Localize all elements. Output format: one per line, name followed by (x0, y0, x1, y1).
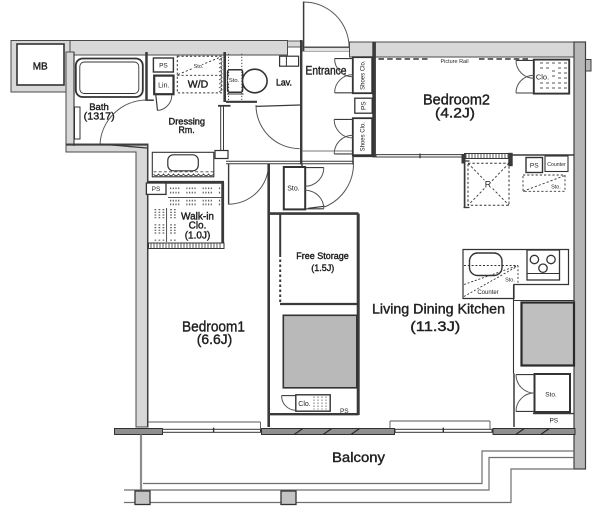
svg-text:(4.2J): (4.2J) (435, 105, 475, 121)
svg-text:PS: PS (361, 101, 368, 110)
svg-text:Counter: Counter (547, 162, 566, 168)
svg-text:Clo.: Clo. (536, 73, 549, 82)
svg-text:Living Dining Kitchen: Living Dining Kitchen (372, 300, 505, 316)
svg-text:PS: PS (549, 417, 558, 424)
svg-text:Entrance: Entrance (306, 64, 347, 78)
svg-text:Counter: Counter (477, 290, 498, 296)
svg-text:PS: PS (530, 162, 539, 169)
svg-text:(1.5J): (1.5J) (311, 263, 334, 273)
svg-text:Sto.: Sto. (551, 185, 561, 191)
svg-text:Sto.: Sto. (545, 392, 557, 399)
svg-text:Sto.: Sto. (229, 78, 240, 84)
svg-text:(1.0J): (1.0J) (185, 231, 211, 242)
svg-text:(11.3J): (11.3J) (410, 318, 460, 334)
svg-text:MB: MB (33, 60, 48, 72)
svg-text:R: R (485, 180, 492, 190)
svg-text:PS: PS (152, 186, 161, 193)
svg-text:Shoes Clo.: Shoes Clo. (361, 60, 367, 90)
svg-text:Picture Rail: Picture Rail (440, 59, 468, 65)
svg-text:Balcony: Balcony (332, 449, 385, 465)
svg-text:Sto.: Sto. (287, 186, 300, 193)
svg-text:PS: PS (159, 63, 168, 70)
svg-text:W/D: W/D (188, 78, 209, 90)
svg-text:(1317): (1317) (84, 111, 115, 123)
svg-text:(6.6J): (6.6J) (197, 332, 233, 347)
svg-text:Sto.: Sto. (194, 64, 204, 70)
svg-text:Lav.: Lav. (276, 77, 292, 87)
svg-text:Lin.: Lin. (158, 83, 169, 90)
svg-text:Free Storage: Free Storage (296, 251, 349, 261)
svg-text:Sto.: Sto. (505, 278, 515, 284)
svg-text:Clo.: Clo. (298, 401, 311, 408)
svg-text:Shoes Clo.: Shoes Clo. (361, 122, 367, 152)
svg-text:Rm.: Rm. (179, 125, 195, 135)
